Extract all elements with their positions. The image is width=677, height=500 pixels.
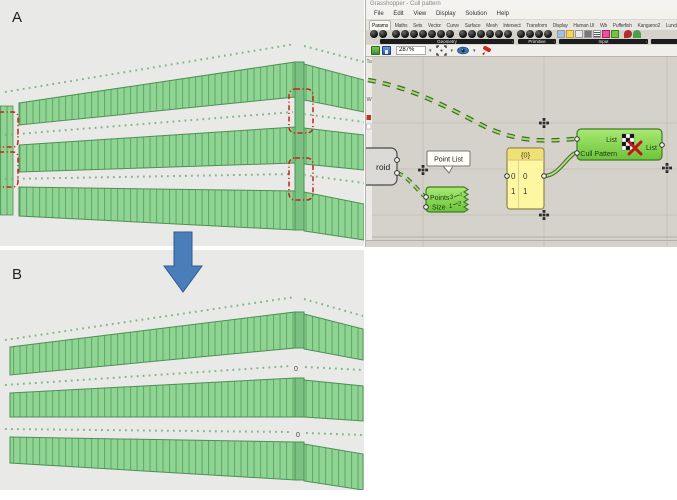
tab-vector[interactable]: Vector — [426, 21, 443, 30]
grasshopper-window: Grasshopper - Cull pattern File Edit Vie… — [365, 0, 677, 247]
tab-transform[interactable]: Transform — [524, 21, 549, 30]
input-label-cull-pattern: Cull Pattern — [580, 151, 617, 158]
input-port[interactable] — [575, 137, 580, 142]
component-icon-row — [366, 30, 677, 39]
folder-icon[interactable] — [566, 30, 574, 38]
output-label-list: List — [646, 145, 657, 152]
tab-surface[interactable]: Surface — [463, 21, 483, 30]
point-row-gap-2 — [5, 174, 364, 183]
component-icon[interactable] — [544, 30, 552, 38]
sketch-marker-icon[interactable] — [480, 46, 492, 56]
menu-solution[interactable]: Solution — [461, 9, 491, 20]
edge-white-iconlet — [367, 124, 372, 129]
tab-kangaroo2[interactable]: Kangaroo2 — [635, 21, 662, 30]
viewport-a-drawing: A — [0, 0, 364, 246]
menu-file[interactable]: File — [370, 9, 388, 20]
component-icon[interactable] — [517, 30, 525, 38]
panel-row-index: 1 — [511, 187, 516, 196]
panel-a-label: A — [12, 9, 22, 26]
component-icon[interactable] — [370, 30, 378, 38]
tree-icon[interactable] — [633, 30, 641, 38]
zoom-extents-icon[interactable] — [436, 45, 447, 56]
component-icon[interactable] — [401, 30, 409, 38]
param-icon[interactable] — [611, 30, 619, 38]
tab-curve[interactable]: Curve — [445, 21, 461, 30]
tab-lunchbox[interactable]: LunchBox — [664, 21, 677, 30]
point-index-label-2: 0 — [296, 432, 300, 439]
input-port[interactable] — [424, 205, 429, 210]
point-row-gap-2 — [5, 429, 363, 435]
window-titlebar: Grasshopper - Cull pattern — [366, 0, 677, 9]
screenshot-root: A — [0, 0, 677, 500]
viewport-a: A — [0, 0, 364, 246]
tab-params[interactable]: Params — [369, 20, 391, 30]
component-icon[interactable] — [495, 30, 503, 38]
component-icon[interactable] — [468, 30, 476, 38]
point-index-label-1: 0 — [294, 366, 298, 373]
open-file-icon[interactable] — [371, 46, 380, 55]
point-list-component[interactable]: Points Size 3 4 1 2 — [424, 187, 468, 212]
output-port[interactable] — [660, 143, 665, 148]
window-title: Grasshopper - Cull pattern — [370, 1, 441, 7]
panel-row-value: 1 — [523, 187, 528, 196]
grasshopper-canvas[interactable]: Ta W — [366, 57, 677, 247]
cull-pattern-component[interactable]: List Cull Pattern List — [575, 129, 665, 160]
component-icon[interactable] — [526, 30, 534, 38]
component-icon[interactable] — [459, 30, 467, 38]
louver-band-1-right — [304, 314, 363, 360]
louver-band-2-right — [304, 380, 363, 421]
louver-band-1 — [10, 312, 295, 375]
menu-bar: File Edit View Display Solution Help — [366, 9, 677, 20]
tab-display[interactable]: Display — [551, 21, 570, 30]
data-panel-component[interactable]: {0} 0 0 1 1 — [505, 148, 547, 209]
panel-path-header: {0} — [521, 151, 531, 160]
input-port[interactable] — [424, 195, 429, 200]
input-label-list: List — [606, 137, 617, 144]
param-icon[interactable] — [602, 30, 610, 38]
param-icon[interactable] — [557, 30, 565, 38]
component-icon[interactable] — [486, 30, 494, 38]
tooltip-label: Point List — [434, 157, 463, 164]
component-icon[interactable] — [410, 30, 418, 38]
component-icon[interactable] — [428, 30, 436, 38]
menu-view[interactable]: View — [409, 9, 430, 20]
louver-band-1 — [19, 62, 295, 125]
component-icon[interactable] — [504, 30, 512, 38]
component-icon[interactable] — [446, 30, 454, 38]
output-port[interactable] — [395, 171, 400, 176]
preview-eye-icon[interactable] — [457, 46, 469, 55]
viewport-b-drawing: B 0 0 — [0, 250, 364, 490]
component-icon[interactable] — [477, 30, 485, 38]
menu-help[interactable]: Help — [493, 9, 513, 20]
tab-wb[interactable]: Wb — [598, 21, 609, 30]
louver-band-3-right — [304, 444, 363, 490]
louver-band-2 — [10, 378, 295, 417]
viewport-b: B 0 0 — [0, 250, 364, 490]
input-label-points: Points — [430, 195, 450, 202]
tab-intersect[interactable]: Intersect — [501, 21, 522, 30]
component-icon[interactable] — [392, 30, 400, 38]
tab-bar: Params Maths Sets Vector Curve Surface M… — [366, 20, 677, 30]
edge-red-iconlet — [367, 115, 372, 120]
input-port[interactable] — [575, 151, 580, 156]
component-icon[interactable] — [437, 30, 445, 38]
louver-band-3 — [19, 187, 295, 230]
output-port[interactable] — [395, 158, 400, 163]
louver-band-3-right — [304, 192, 364, 240]
corner-columns — [295, 312, 304, 480]
louver-band-3 — [10, 437, 295, 480]
chevron-down-icon[interactable]: ▾ — [473, 48, 476, 54]
save-file-icon[interactable] — [382, 46, 391, 55]
louver-band-2 — [19, 127, 295, 172]
centroid-label: roid — [376, 162, 390, 172]
tab-pufferfish[interactable]: Pufferfish — [611, 21, 634, 30]
param-icon[interactable] — [584, 30, 592, 38]
input-port[interactable] — [505, 174, 510, 179]
component-icon[interactable] — [535, 30, 543, 38]
edge-label-top: Ta — [367, 59, 373, 65]
tab-human-ui[interactable]: Human UI — [571, 21, 596, 30]
panel-row-value: 0 — [523, 172, 528, 181]
tab-sets[interactable]: Sets — [411, 21, 424, 30]
louver-band-2-right — [304, 128, 364, 170]
panel-b-label: B — [12, 266, 22, 283]
canvas-toolbar: ▾ ▾ ▾ — [366, 44, 677, 57]
panel-row-index: 0 — [511, 172, 516, 181]
centroid-component[interactable]: roid — [366, 148, 399, 185]
output-port[interactable] — [542, 174, 547, 179]
tab-maths[interactable]: Maths — [393, 21, 410, 30]
chevron-down-icon[interactable]: ▾ — [451, 48, 454, 54]
left-edge-strip — [0, 106, 13, 215]
zoom-level-input[interactable] — [396, 46, 426, 55]
input-label-size: Size — [432, 205, 446, 212]
component-icon[interactable] — [379, 30, 387, 38]
menu-edit[interactable]: Edit — [389, 9, 407, 20]
cherry-icon[interactable] — [624, 30, 632, 38]
list-icon[interactable] — [593, 30, 601, 38]
edge-label-bottom: W — [367, 97, 373, 103]
param-icon[interactable] — [575, 30, 583, 38]
tab-mesh[interactable]: Mesh — [484, 21, 499, 30]
menu-display[interactable]: Display — [432, 9, 460, 20]
corner-column — [295, 62, 304, 230]
chevron-down-icon[interactable]: ▾ — [429, 48, 432, 54]
component-icon[interactable] — [419, 30, 427, 38]
